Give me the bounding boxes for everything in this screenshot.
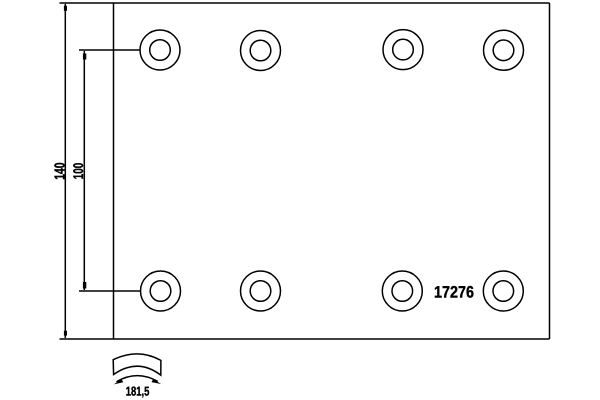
svg-text:17276: 17276	[434, 284, 474, 302]
svg-text:181,5: 181,5	[126, 384, 150, 399]
svg-text:140: 140	[53, 163, 69, 180]
svg-text:100: 100	[70, 163, 86, 180]
